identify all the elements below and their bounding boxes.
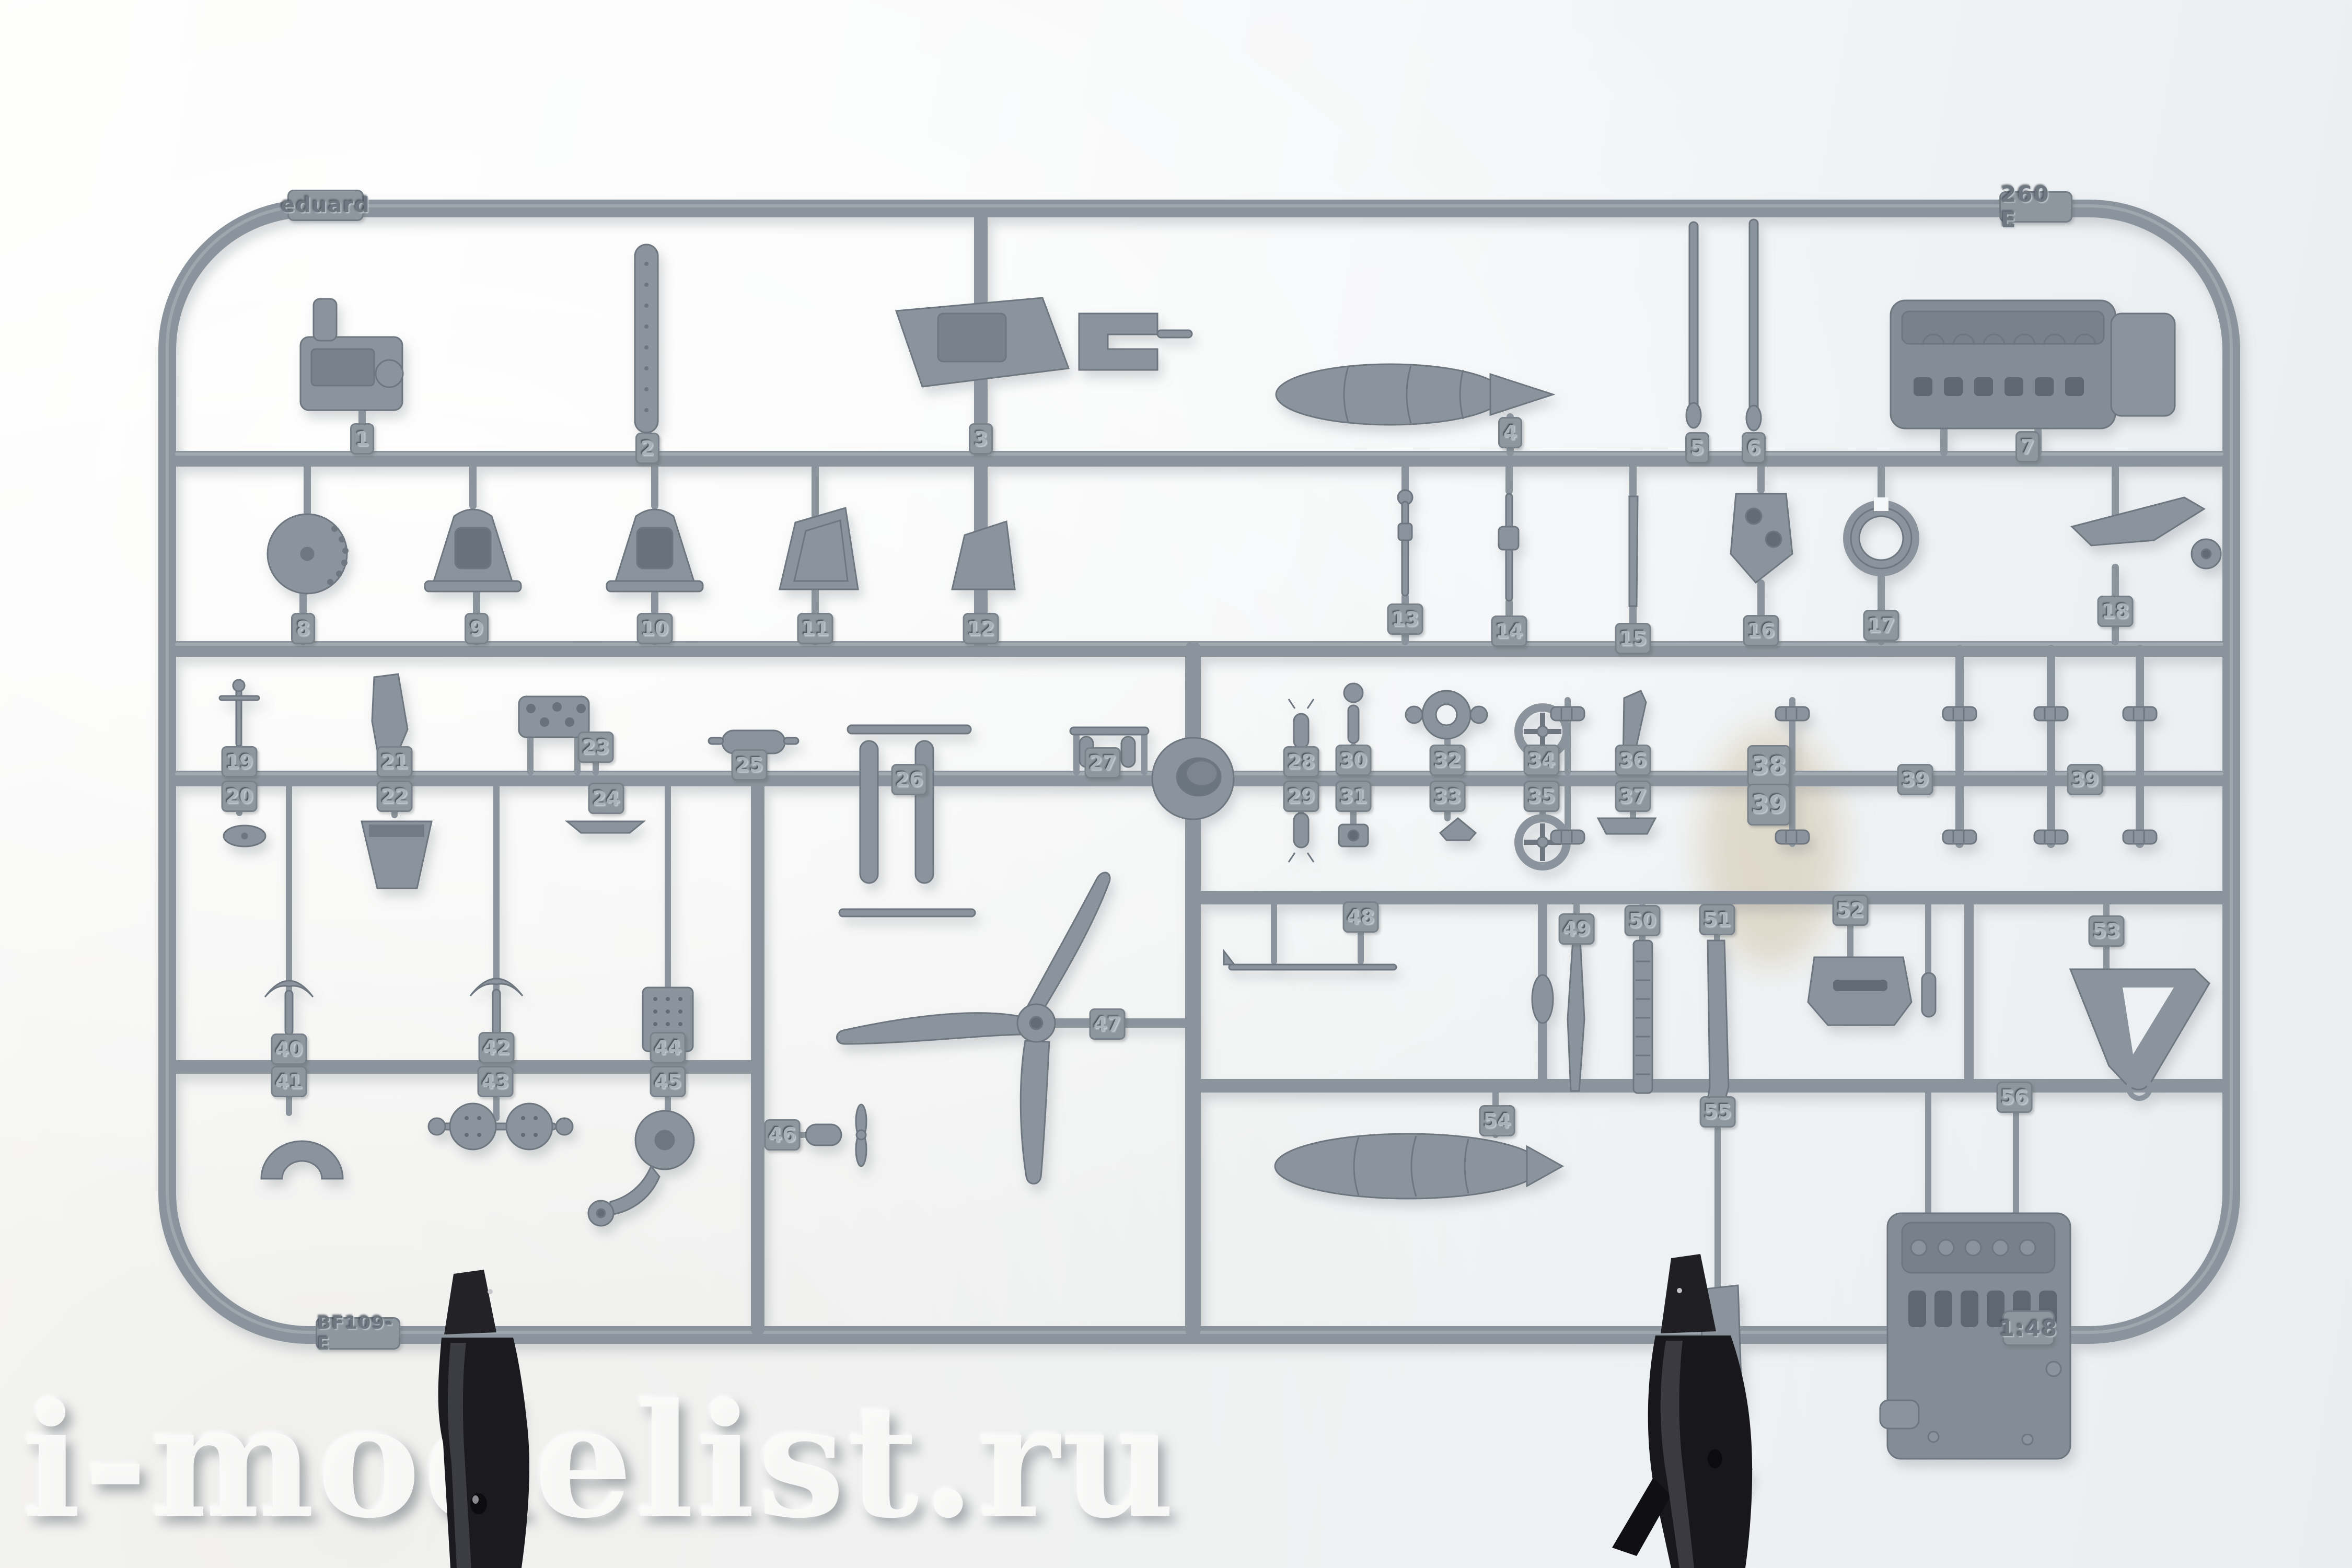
clips-overlay [0,0,2352,1568]
clip-left [438,1270,529,1568]
clip-right [1612,1254,1752,1568]
photo-stage: 1234567891011121314151617181920212223242… [0,0,2352,1568]
